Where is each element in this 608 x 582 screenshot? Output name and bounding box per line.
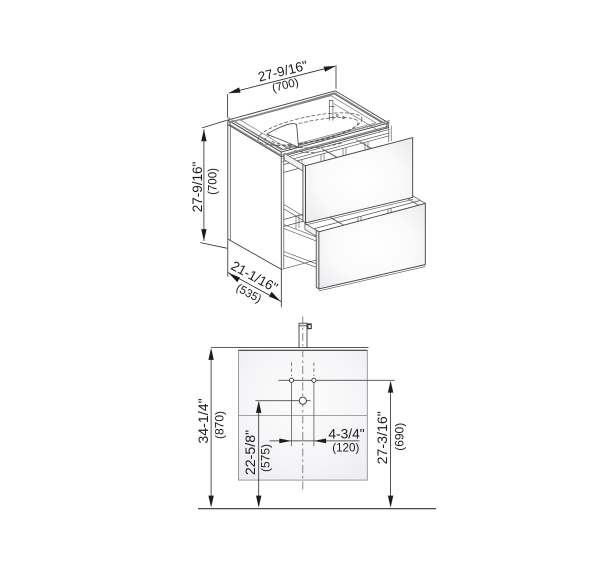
svg-text:(870): (870) (213, 411, 227, 439)
svg-text:27-9/16": 27-9/16" (190, 162, 205, 213)
svg-text:(700): (700) (208, 168, 220, 195)
svg-text:4-3/4": 4-3/4" (328, 426, 364, 441)
svg-text:27-3/16": 27-3/16" (375, 411, 391, 464)
svg-text:34-1/4": 34-1/4" (196, 398, 212, 443)
svg-text:22-5/8": 22-5/8" (243, 430, 259, 475)
svg-text:(690): (690) (393, 423, 407, 451)
svg-text:(120): (120) (332, 442, 359, 455)
svg-text:(575): (575) (259, 444, 273, 472)
